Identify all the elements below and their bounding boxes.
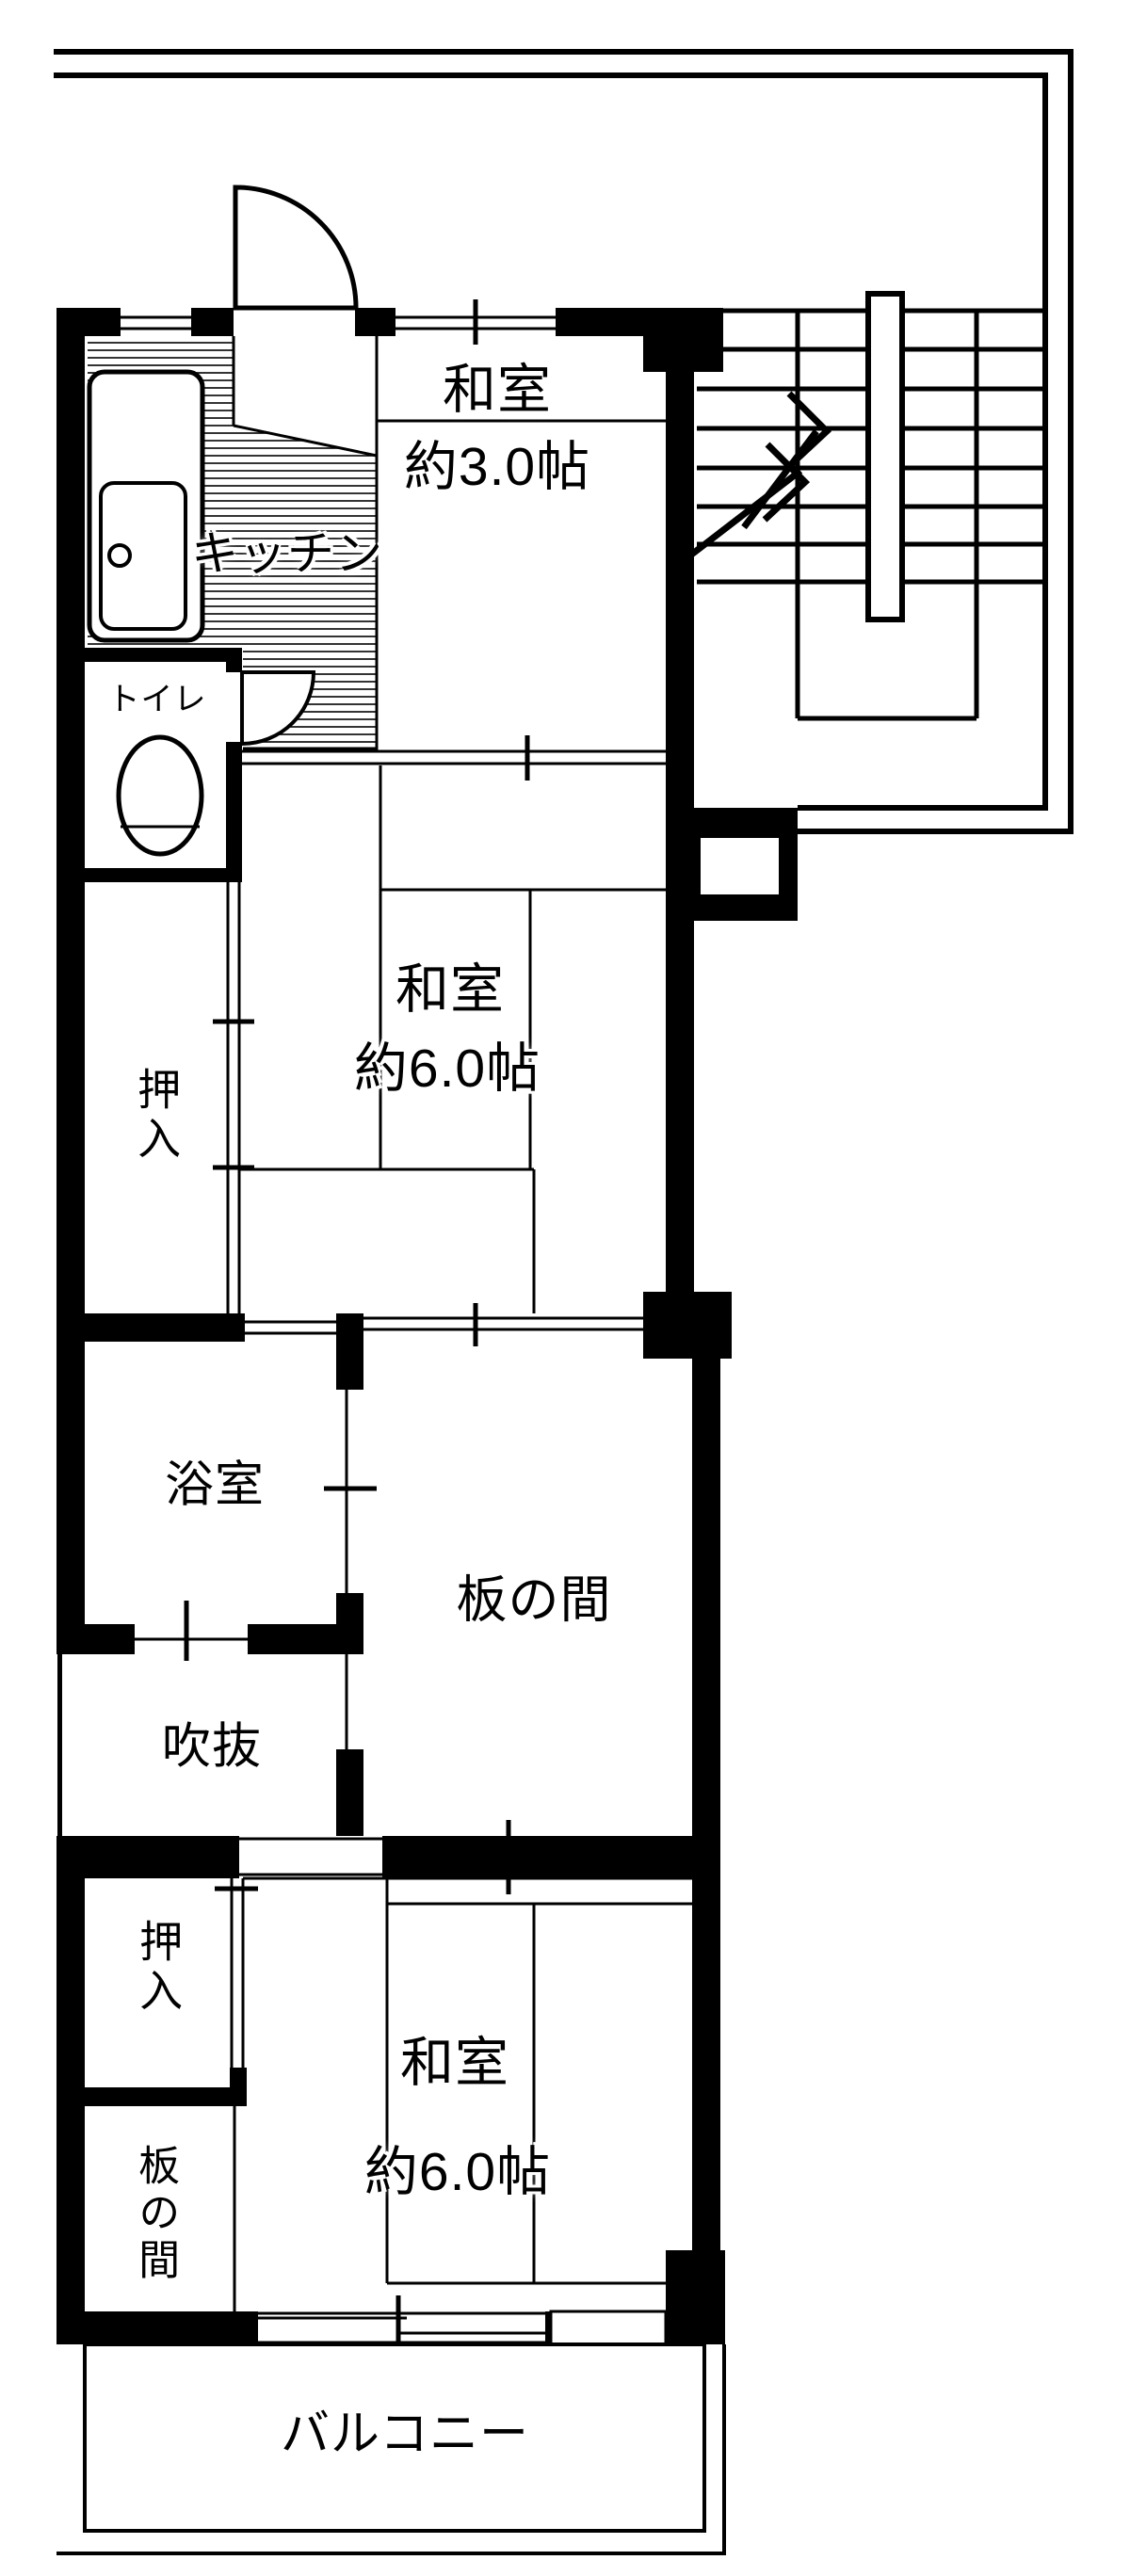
room-size-washitsu-upper: 約3.0帖 [404,440,590,496]
room-label-closet-upper: 押入 [134,1067,179,1165]
toilet-fixture [119,737,202,854]
floor-plan: キッチン 和室 約3.0帖 トイレ 押入 和室 約6.0帖 浴室 吹抜 板の間 … [0,0,1130,2576]
room-label-itanoma-lower: 板の間 [133,2144,176,2285]
room-label-itanoma-center: 板の間 [457,1574,612,1628]
stair-handrail [868,294,902,620]
pipe-space-void [701,838,779,894]
room-label-void: 吹抜 [162,1722,262,1774]
room-label-washitsu-middle: 和室 [395,962,505,1019]
room-label-bathroom: 浴室 [165,1460,265,1512]
room-label-washitsu-lower: 和室 [400,2036,509,2092]
room-size-washitsu-middle: 約6.0帖 [354,1041,541,1098]
room-label-toilet: トイレ [108,684,207,717]
room-label-washitsu-upper: 和室 [443,362,552,419]
room-label-kitchen: キッチン [191,529,383,579]
room-label-balcony: バルコニー [281,2409,529,2461]
room-size-washitsu-lower: 約6.0帖 [364,2145,551,2201]
sink-drain [109,545,130,566]
fixed-window [551,2311,666,2344]
room-label-closet-lower: 押入 [136,1919,181,2017]
kitchen-fixtures [89,372,202,640]
